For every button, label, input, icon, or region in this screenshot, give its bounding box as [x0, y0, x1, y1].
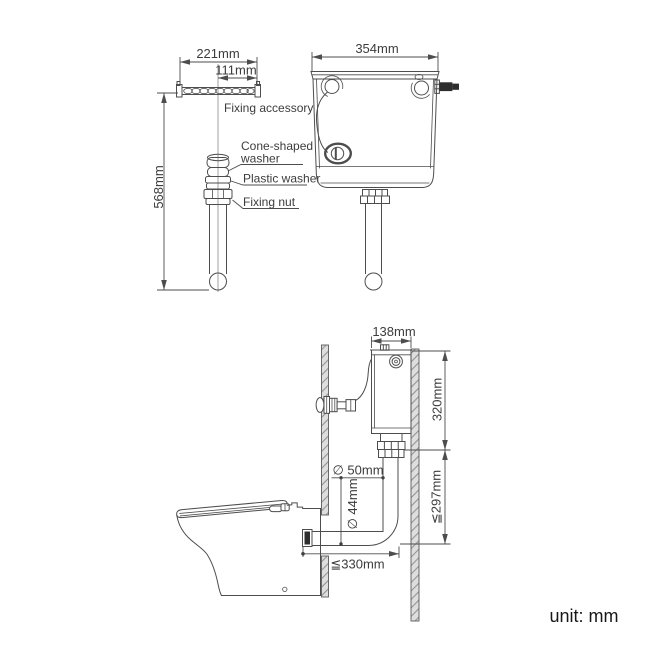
dim-138-label: 138mm [372, 324, 415, 339]
wall-right [411, 349, 419, 621]
dim-44 [339, 478, 342, 546]
inlet-connector [435, 80, 459, 93]
fixing-bar [177, 82, 261, 98]
toilet-inlet-spigot [303, 530, 313, 547]
dim-50-label: ∅ 50mm [333, 463, 384, 478]
fixing-nut-label: Fixing nut [243, 195, 296, 209]
dim-44-label: ∅ 44mm [345, 478, 360, 529]
dim-330-label: ≦330mm [330, 557, 384, 572]
fixing-accessory-label: Fixing accessory [224, 101, 313, 115]
technical-drawing-page: 221mm 111mm Fixing accessory 5 [0, 0, 650, 650]
cistern-lid [311, 72, 439, 80]
unit-note: unit: mm [549, 606, 618, 626]
fixing-hole-right [415, 81, 429, 95]
dim-568-label: 568mm [151, 165, 166, 208]
dim-111-label: 111mm [215, 63, 256, 78]
fixing-hole-left [325, 80, 339, 94]
cistern-installation-diagram: 221mm 111mm Fixing accessory 5 [0, 0, 650, 650]
wall-left-lower [322, 556, 329, 597]
cone-washer-label-line2: washer [240, 152, 280, 166]
cistern-side-view [371, 345, 412, 458]
installation-side-view: 138mm 320mm ≦297mm ∅ 50mm ∅ 44mm [177, 324, 451, 621]
toilet-bowl-curve [177, 515, 222, 595]
wall-left-upper [322, 345, 329, 515]
cable-gland [325, 144, 351, 164]
top-fitting [381, 345, 389, 350]
outlet-thread [361, 190, 390, 204]
fixing-accessory-view: 221mm 111mm Fixing accessory 5 [151, 46, 320, 292]
button-cable-side [356, 359, 372, 401]
plastic-washer-label: Plastic washer [243, 172, 320, 186]
dim-297-label: ≦297mm [428, 470, 443, 524]
toilet-profile [177, 501, 321, 596]
dim-320-label: 320mm [429, 378, 444, 421]
dim-354-label: 354mm [355, 41, 398, 56]
cistern-front-view: 354mm [311, 41, 459, 290]
dim-221-label: 221mm [196, 46, 239, 61]
cistern-body [311, 72, 459, 291]
